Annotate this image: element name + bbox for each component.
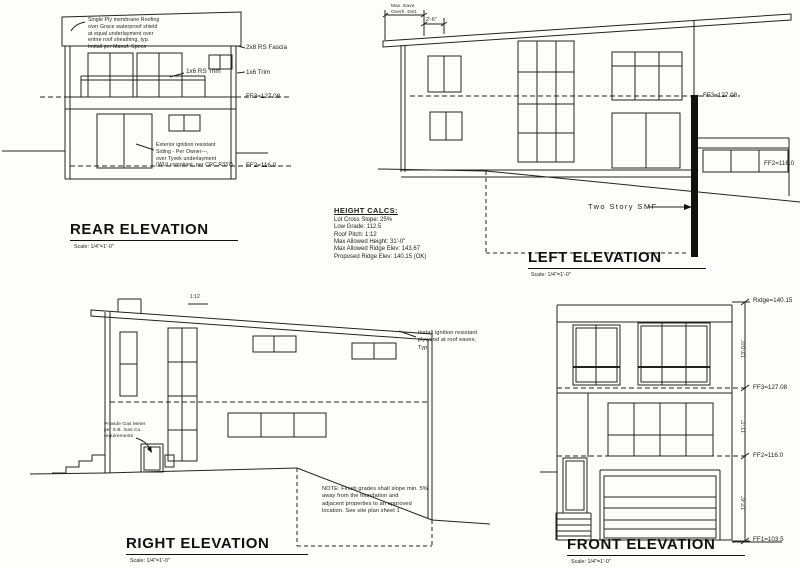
gas-meter-note: Provide Gas Meter per S.B. Gas Co. requi…: [104, 422, 152, 441]
rear-ff3-label: FF3=127.08: [246, 93, 280, 100]
height-calcs-line: Low Grade: 112.5: [334, 224, 426, 231]
height-calcs-block: HEIGHT CALCS: Lot Cross Slope: 25% Low G…: [334, 206, 426, 261]
front-elevation-scale: Scale: 1/4"=1'-0": [571, 559, 611, 565]
grade-note: NOTE: Finish grades shall slope min. 5% …: [322, 486, 447, 515]
elevation-drawing-sheet: Single Ply membrane Roofing over Grace w…: [0, 0, 800, 568]
front-dim-upper: 13'-0⅞": [741, 340, 747, 358]
right-elevation-scale: Scale: 1/4"=1'-0": [130, 558, 170, 564]
rear-siding-note: Exterior ignition resistant Siding - Per…: [156, 142, 256, 169]
height-calcs-line: Proposed Ridge Elev: 140.15 (OK): [334, 254, 426, 261]
left-ff3-label: FF3=127.08: [703, 92, 737, 99]
rear-roof-note: Single Ply membrane Roofing over Grace w…: [88, 17, 203, 51]
front-ridge-label: Ridge=140.15: [753, 297, 792, 304]
rear-elevation-title: REAR ELEVATION: [70, 221, 238, 241]
right-eave-note: Install ignition resistant plywood at ro…: [418, 330, 488, 352]
rear-trim-label: 1x6 Trim: [246, 69, 270, 76]
rear-rail-trim-label: 1x6 RS Trim: [186, 68, 221, 75]
rear-fascia-label: 2x8 RS Fascia: [246, 44, 287, 51]
left-eave-note: Max. Eave Overh. Dist.: [391, 4, 431, 16]
left-ff2-label: FF2=116.0: [764, 160, 794, 167]
height-calcs-line: Max Allowed Height: 31'-0": [334, 239, 426, 246]
front-dim-lower: 12'-6": [741, 496, 747, 510]
rear-ff2-label: FF2=116.0: [246, 162, 276, 169]
right-pitch-label: 1:12: [190, 294, 200, 300]
two-story-smf-label: Two Story SMF: [588, 202, 657, 211]
left-elevation-scale: Scale: 1/4"=1'-0": [531, 272, 571, 278]
left-eave-dimension: 2'-6": [426, 17, 437, 23]
height-calcs-title: HEIGHT CALCS:: [334, 206, 426, 215]
front-elevation-title: FRONT ELEVATION: [567, 536, 745, 556]
height-calcs-line: Lot Cross Slope: 25%: [334, 217, 426, 224]
linework-canvas: [0, 0, 800, 568]
left-elevation-drawing: [378, 10, 800, 257]
height-calcs-line: Max Allowed Ridge Elev: 143.67: [334, 246, 426, 253]
height-calcs-line: Roof Pitch: 1:12: [334, 232, 426, 239]
front-ff2-label: FF2=116.0: [753, 452, 783, 459]
left-elevation-title: LEFT ELEVATION: [528, 249, 706, 269]
rear-elevation-scale: Scale: 1/4"=1'-0": [74, 244, 114, 250]
right-elevation-title: RIGHT ELEVATION: [126, 535, 308, 555]
front-ff1-label: FF1=103.5: [753, 536, 784, 543]
front-ff3-label: FF3=127.08: [753, 384, 787, 391]
front-dim-mid: 11'-1": [741, 420, 747, 433]
